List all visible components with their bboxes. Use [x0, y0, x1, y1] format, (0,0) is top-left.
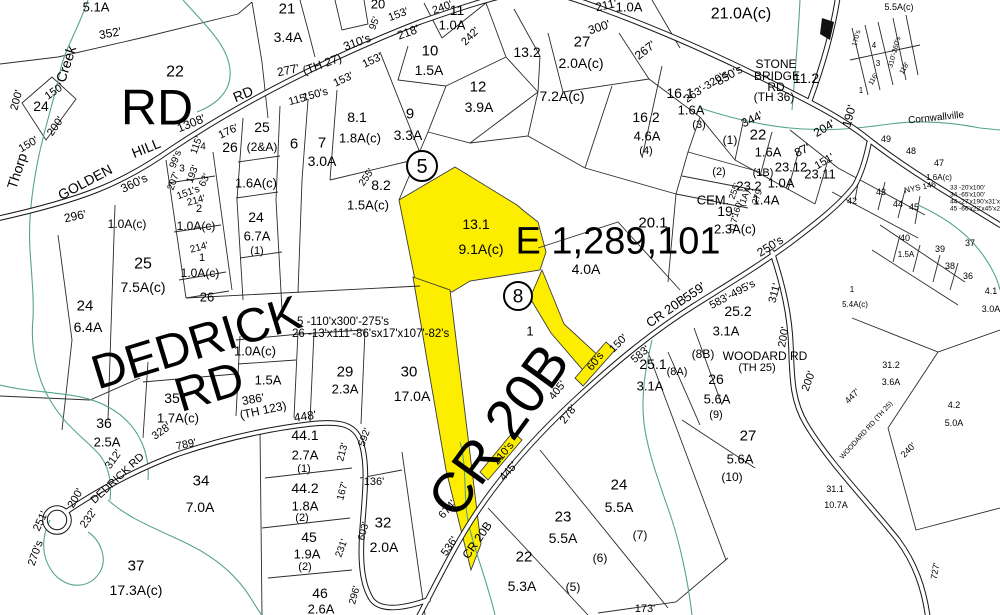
parcel-label: 44 -27'x190'x31'x28' [950, 198, 1000, 205]
parcel-boundary-line [298, 180, 302, 293]
parcel-label: 190' [840, 103, 859, 128]
parcel-label: 44.1 [291, 427, 318, 443]
parcel-boundary-line [598, 558, 728, 613]
parcel-label: 1.5A [898, 250, 915, 259]
parcel-boundary-line [585, 168, 676, 194]
circled-marker-value: 8 [513, 287, 524, 308]
parcel-label: 25.2 [724, 303, 751, 319]
parcel-label: 200' [8, 89, 25, 112]
parcel-label: 6.7A [244, 229, 271, 244]
parcel-label: 29 [337, 363, 354, 380]
parcel-label: 7.0A [186, 499, 215, 515]
parcel-label: 4.6A [634, 129, 661, 144]
parcel-boundary-line [528, 136, 585, 168]
parcel-label: 1 [850, 285, 855, 294]
parcel-label: (2) [298, 561, 311, 573]
parcel-label: 278' [558, 403, 580, 427]
parcel-boundary-line [933, 255, 940, 282]
parcel-label: 204' [811, 117, 837, 140]
parcel-label: 153' [387, 6, 410, 24]
parcel-label: 43 [876, 187, 886, 197]
parcel-label: (4) [639, 145, 652, 157]
parcel-label: 23.11 [804, 167, 836, 182]
parcel-boundary-line [236, 192, 278, 198]
parcel-label: 36 [96, 415, 112, 431]
parcel-label: 3.0A [308, 153, 337, 169]
parcel-label: 45 -66'x22'x45'x28' [950, 205, 1000, 212]
parcel-label: 167' [335, 481, 350, 502]
highlighted-parcel-number: 13.1 [462, 216, 489, 232]
parcel-boundary-line [260, 430, 262, 615]
parcel-label: 118' [899, 61, 911, 75]
parcel-label: (8A) [667, 366, 688, 378]
road-label: (TH 27) [301, 51, 344, 78]
parcel-label: 5.5A(c) [884, 2, 913, 12]
parcel-label: 592' [357, 427, 374, 448]
parcel-boundary-line [361, 330, 365, 424]
parcel-label: 3.1A [713, 324, 740, 339]
parcel-label: 17.0A [394, 388, 431, 404]
parcel-label: 21 [279, 0, 296, 17]
parcel-label: 8.1 [347, 109, 367, 125]
parcel-label: 45 [909, 202, 919, 212]
parcel-label: 173' [635, 603, 655, 615]
parcel-map-page: 5.1A352'CreekThorp2224200'150'200'150'RD… [0, 0, 1000, 615]
parcel-label: 5.5A [549, 530, 578, 546]
parcel-label: 1.0A(c) [108, 217, 147, 231]
parcel-label: 1.0A [616, 0, 643, 15]
parcel-label: 2.6A [308, 602, 335, 615]
parcel-label: 7.2A(c) [539, 88, 584, 104]
parcel-label: 22 [166, 64, 184, 81]
parcel-label: 10.7A [824, 500, 848, 510]
parcel-label: 231' [334, 538, 351, 559]
parcel-label: 11 [450, 2, 465, 18]
parcel-boundary-line [850, 45, 920, 60]
parcel-label: (6) [593, 551, 608, 565]
coordinate-label: E 1,289,101 [516, 220, 721, 262]
parcel-label: 1.0A(c) [177, 219, 216, 233]
parcel-label: 150' [43, 81, 67, 103]
parcel-label: 1.0A [768, 176, 795, 191]
parcel-label: 240' [899, 440, 918, 459]
parcel-label: 136' [364, 476, 384, 488]
parcel-boundary-line [585, 86, 612, 168]
parcel-label: 37 [128, 557, 145, 574]
parcel-label: 32 [375, 514, 392, 531]
parcel-label: 24 [33, 98, 49, 114]
parcel-label: 95' [368, 15, 383, 31]
parcel-label: 200' [800, 370, 818, 393]
parcel-label: 3.1A [637, 379, 664, 394]
parcel-label: 5.5A [605, 499, 634, 515]
parcel-label: 63' [197, 172, 213, 189]
parcel-label: 12 [470, 78, 487, 95]
parcel-label: 727' [929, 562, 942, 580]
parcel-boundary-line [402, 452, 425, 615]
parcel-label: 352' [98, 24, 122, 42]
parcel-label: 16.1 [666, 85, 693, 101]
parcel-label: 5.1A [83, 0, 110, 15]
parcel-label: 1.9A [294, 547, 321, 562]
parcel-label: 44.2 [291, 480, 318, 496]
parcel-label: 2.5A [94, 435, 121, 450]
parcel-label: 3.0A [982, 304, 1000, 314]
parcel-label: 3.6A [882, 377, 901, 387]
parcel-label: 1.5A(c) [347, 198, 389, 213]
parcel-label: 45 [301, 529, 317, 545]
parcel-label: 36 [963, 271, 973, 281]
parcel-label: 7 [318, 134, 326, 151]
parcel-label: 1.6A [678, 103, 705, 118]
parcel-label: (5) [566, 580, 581, 594]
road-label: NYS 146 [903, 179, 937, 195]
parcel-label: 27 [740, 427, 757, 444]
parcel-label: 10 [422, 42, 439, 59]
parcel-map: 5.1A352'CreekThorp2224200'150'200'150'RD… [0, 0, 1000, 615]
parcel-label: 4.2 [948, 400, 961, 410]
parcel-label: (7) [633, 528, 648, 542]
parcel-label: (8B) [692, 347, 715, 361]
parcel-label: 5.6A [727, 452, 754, 467]
parcel-label: 3.9A [465, 99, 494, 115]
parcel-label: 46 [312, 585, 328, 601]
parcel-label: 31.1 [826, 484, 844, 494]
parcel-boundary-line [237, 118, 243, 300]
parcel-label: 48 [906, 146, 916, 156]
parcel-label: 26 [222, 139, 238, 155]
parcel-label: 4 [872, 41, 877, 50]
parcel-label: (10) [721, 470, 742, 484]
parcel-label: (3) [692, 119, 705, 131]
parcel-label: 300' [586, 17, 612, 37]
parcel-label: 23 [555, 508, 572, 525]
parcel-label: 26 [708, 371, 724, 387]
road-label: (TH 36) [754, 90, 795, 104]
parcel-label: 232' [78, 507, 100, 531]
parcel-label: 7.5A(c) [120, 279, 165, 295]
parcel-label: 1.5A [415, 62, 444, 78]
parcel-label: 270's [26, 539, 46, 568]
parcel-label: 1 [199, 252, 205, 264]
parcel-label: (1) [723, 133, 738, 147]
parcel-label: 35 [164, 390, 180, 406]
parcel-boundary-line [0, 2, 252, 64]
parcel-label: 6 [290, 135, 298, 152]
parcel-boundary-line [872, 250, 958, 305]
parcel-label: 5.3A [508, 578, 537, 594]
parcel-label: 2.3A [332, 382, 359, 397]
parcel-label: 4.1 [985, 286, 998, 296]
parcel-label: 24 [77, 297, 94, 314]
parcel-label: 24 [248, 209, 264, 225]
parcel-label: 3.4A [274, 29, 303, 45]
parcel-label: 87' [792, 141, 812, 160]
parcel-boundary-line [852, 318, 1000, 352]
parcel-label: 17.3A(c) [110, 582, 163, 598]
parcel-label: 22 [750, 126, 767, 143]
parcel-label: 115' [287, 91, 309, 108]
parcel-label: 1.0A(c) [181, 266, 220, 280]
parcel-label: 33 -20'x100' [950, 184, 985, 191]
parcel-label: 30 [401, 363, 418, 380]
parcel-label: 20 [371, 0, 385, 12]
parcel-label: 150' [17, 134, 41, 155]
parcel-label: 31.2 [882, 360, 900, 370]
parcel-label: (1) [297, 463, 310, 475]
dimension-note: 5 -110'x300'-275's [297, 316, 389, 328]
parcel-label: 34 -65'x100' [950, 191, 985, 198]
parcel-label: (2) [295, 512, 308, 524]
parcel-label: 213' [335, 442, 350, 463]
parcel-label: 37 [965, 238, 975, 248]
parcel-label: 447' [843, 386, 862, 405]
parcel-label: 39 [935, 244, 945, 254]
dimension-note: 26 -13'x111'-86'sx17'x107'-82's [292, 328, 449, 340]
parcel-label: 44 [893, 199, 903, 209]
parcel-boundary-line [276, 106, 282, 310]
parcel-boundary-line [888, 428, 1000, 530]
parcel-boundary-line [294, 332, 298, 418]
parcel-label: 311' [766, 282, 783, 304]
parcel-label: 1.0A [439, 18, 466, 33]
parcel-label: 2.7A [292, 448, 319, 463]
parcel-label: 4 [200, 142, 206, 153]
parcel-label: 47 [934, 158, 944, 168]
parcel-label: 2.0A [370, 539, 399, 555]
parcel-label: 3 [876, 59, 881, 68]
parcel-label: 1.0A(c) [234, 344, 276, 359]
parcel-boundary-line [880, 225, 965, 282]
parcel-label: 1.5A [255, 373, 282, 388]
parcel-label: 296' [63, 207, 88, 225]
parcel-label: 5.4A(c) [842, 300, 868, 309]
parcel-label: 13.2 [513, 44, 540, 60]
parcel-label: 1.6A(c) [235, 176, 277, 191]
parcel-label: 5.0A [945, 418, 964, 428]
parcel-label: 360's [118, 171, 150, 196]
parcel-label: 34 [193, 472, 210, 489]
road-dedrick-culdesac-surface [45, 508, 69, 532]
road-label: (TH 25) [738, 362, 775, 374]
parcel-label: 22 [516, 548, 533, 565]
parcel-boundary-line [488, 508, 588, 615]
highlighted-parcel-acreage: 9.1A(c) [458, 241, 503, 257]
parcel-label: 2 [196, 203, 202, 215]
parcel-boundary-line [668, 352, 700, 425]
parcel-label: (1) [250, 245, 263, 257]
parcel-label: 4.0A [572, 261, 601, 277]
parcel-boundary-line [335, 0, 368, 30]
parcel-label: 6.4A [74, 319, 103, 335]
parcel-label: 9 [406, 105, 414, 122]
parcel-label: 42 [847, 196, 857, 206]
parcel-label: 218' [395, 22, 421, 43]
parcel-label: 8.2 [371, 177, 391, 193]
parcel-label: 116' [868, 72, 880, 86]
road-label: WOODARD RD (TH 25) [839, 400, 894, 460]
parcel-label: (2&A) [247, 140, 278, 154]
parcel-label: 23.12 [775, 160, 808, 175]
parcel-label: 850's [713, 62, 745, 88]
creek-label: Thorp [4, 151, 31, 191]
parcel-label: 1.6A [755, 145, 782, 160]
parcel-label: 27 [574, 33, 591, 50]
parcel-label: 11.2 [793, 70, 819, 86]
parcel-label: 26 [200, 290, 214, 305]
parcel-label: 49 [881, 134, 891, 144]
creek-label: Creek [53, 43, 80, 84]
parcel-label: 21.0A(c) [711, 6, 771, 23]
circled-marker-value: 5 [416, 156, 427, 178]
parcel-label: 1.8A(c) [339, 131, 381, 146]
parcel-label: 3.3A [394, 127, 423, 143]
parcel-label: 25 [254, 119, 270, 135]
parcel-label: (2) [712, 166, 725, 178]
parcel-label: 38 [945, 261, 955, 271]
parcel-label: 16.2 [632, 109, 659, 125]
parcel-label: 25 [134, 256, 152, 273]
parcel-label: 153' [332, 70, 356, 90]
parcel-label: 24 [611, 476, 628, 493]
parcel-label: 40 [900, 233, 910, 243]
parcel-label: (9) [709, 409, 722, 421]
parcel-label: 296' [347, 585, 362, 606]
parcel-boundary-line [238, 156, 280, 162]
parcel-label: 5.6A [704, 392, 731, 407]
parcel-label: 1 [859, 86, 864, 95]
parcel-label: 3 [179, 164, 185, 175]
parcel-boundary-line [238, 360, 296, 364]
parcel-boundary-line [58, 235, 72, 430]
parcel-label: 2.0A(c) [558, 55, 603, 71]
